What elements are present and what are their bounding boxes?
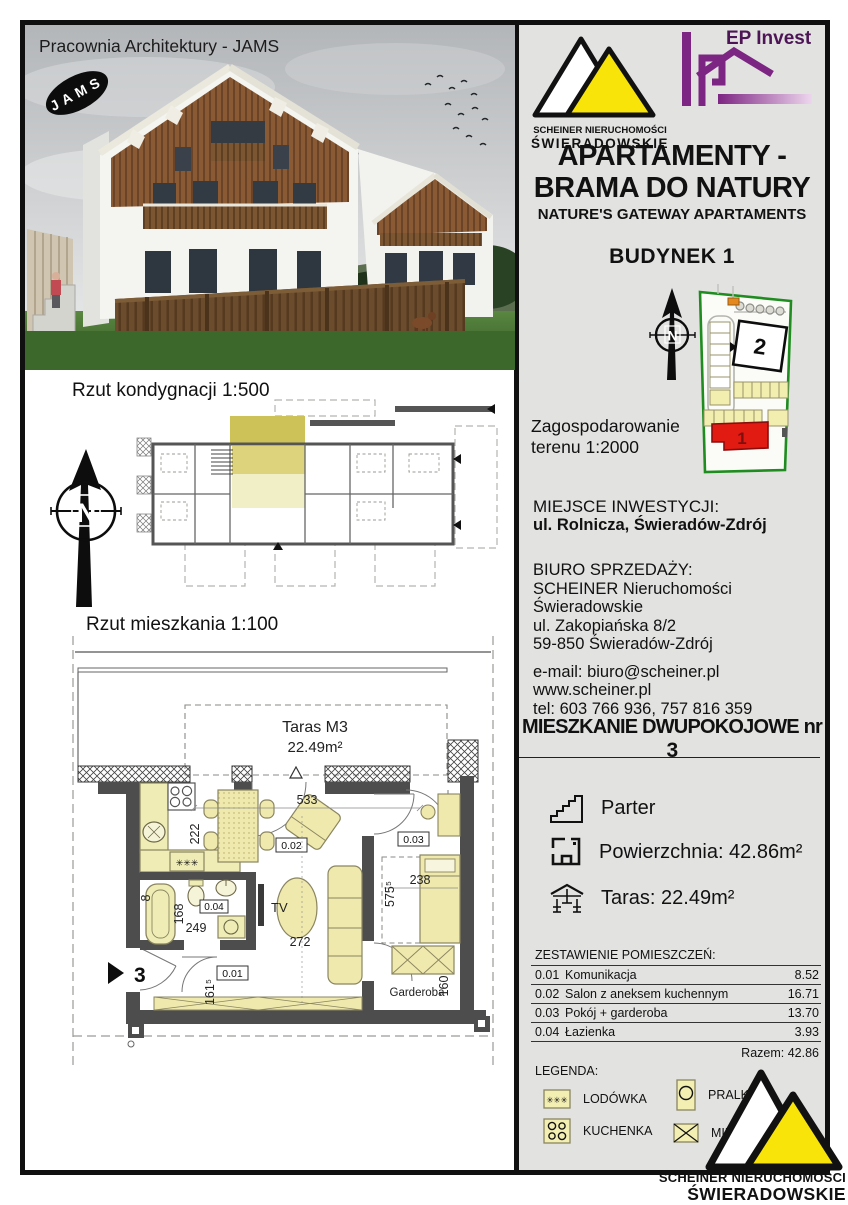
person-figure — [51, 272, 61, 308]
ep-invest-gradient-bar — [718, 94, 812, 104]
office-heading: BIURO SPRZEDAŻY: — [533, 561, 823, 580]
room-table: ZESTAWIENIE POMIESZCZEŃ: 0.01Komunikacja… — [531, 946, 821, 1060]
apartment-number: 3 — [667, 739, 678, 762]
room-02-label: 0.02 — [281, 840, 302, 852]
floor-plan-100: Taras M3 22.49m² — [62, 636, 504, 1072]
room-name: Komunikacja — [565, 968, 795, 982]
corridor-wardrobe — [154, 997, 362, 1010]
room-id: 0.04 — [531, 1025, 565, 1039]
table-row: 0.04Łazienka3.93 — [531, 1022, 821, 1041]
entrance-marker: 3 — [108, 962, 146, 987]
scheiner-logo-icon — [527, 27, 673, 119]
office-email: e-mail: biuro@scheiner.pl — [533, 663, 823, 682]
toilet-tank — [189, 880, 203, 886]
room-table-heading: ZESTAWIENIE POMIESZCZEŃ: — [531, 946, 821, 965]
vent-marker — [290, 767, 302, 778]
site-building-1-label: 1 — [737, 429, 746, 448]
plan100-title: Rzut mieszkania 1:100 — [86, 614, 278, 636]
feature-terrace: Taras: 22.49m² — [549, 880, 819, 916]
page-title-line2: BRAMA DO NATURY — [519, 172, 825, 205]
bedroom-desk — [438, 794, 460, 836]
room-area: 8.52 — [795, 968, 821, 982]
plan500-top-wall-bar — [310, 420, 395, 426]
living-room-group: 0.02 — [276, 793, 362, 984]
site-compass-letter: N — [667, 328, 677, 344]
ep-invest-logo-block: EP Invest — [676, 28, 818, 117]
site-building-2: 2 — [733, 321, 787, 371]
room-name: Pokój + garderoba — [565, 1006, 788, 1020]
fridge-plan-glyph: ✳✳✳ — [176, 858, 199, 868]
photo-credit: Pracownia Architektury - JAMS — [39, 36, 279, 56]
stove-icon — [543, 1118, 571, 1144]
room-04-label: 0.04 — [204, 902, 224, 913]
site-plan-caption: Zagospodarowanie terenu 1:2000 — [531, 416, 701, 458]
room-area: 13.70 — [788, 1006, 821, 1020]
washer-icon — [676, 1079, 696, 1111]
dim-575: 575⁵ — [383, 881, 397, 907]
room-id: 0.01 — [531, 968, 565, 982]
entrance-number: 3 — [134, 964, 146, 987]
room-01-label: 0.01 — [222, 968, 243, 980]
terrace-name: Taras M3 — [282, 719, 348, 736]
dim-160: 160 — [437, 976, 451, 997]
feature-terrace-label: Taras: 22.49m² — [601, 887, 734, 910]
legend-item-label: KUCHENKA — [583, 1124, 652, 1138]
table-row: 0.01Komunikacja8.52 — [531, 965, 821, 984]
table-row: 0.03Pokój + garderoba13.70 — [531, 1003, 821, 1022]
terrace-icon — [549, 881, 585, 915]
feature-floor-label: Parter — [601, 797, 655, 820]
ep-invest-logo-icon: EP Invest — [676, 28, 818, 112]
dim-168: 168 — [172, 904, 186, 925]
wardrobe-icon — [673, 1123, 699, 1143]
room-area: 16.71 — [788, 987, 821, 1001]
compass-icon: N — [48, 445, 124, 611]
legend-item-label: LODÓWKA — [583, 1092, 647, 1106]
terrace-area-value: 22.49m² — [287, 739, 342, 756]
site-edge-mark — [782, 428, 787, 437]
footer-logo-line2: ŚWIERADOWSKIE — [546, 1184, 846, 1205]
sales-office-block: BIURO SPRZEDAŻY: SCHEINER Nieruchomości … — [533, 561, 823, 718]
room-id: 0.02 — [531, 987, 565, 1001]
location-address: ul. Rolnicza, Świeradów-Zdrój — [533, 516, 767, 535]
room-03-label: 0.03 — [403, 834, 424, 846]
dim-238: 238 — [410, 873, 431, 887]
bathroom-group: 0.04 — [140, 872, 256, 950]
washing-machine — [218, 916, 245, 938]
scheiner-logo-line1: SCHEINER NIERUCHOMOŚCI — [527, 125, 673, 136]
legend-heading: LEGENDA: — [535, 1064, 598, 1078]
dim-8: 8 — [139, 894, 153, 901]
room-id: 0.03 — [531, 1006, 565, 1020]
office-website: www.scheiner.pl — [533, 681, 823, 700]
bathtub — [146, 884, 175, 944]
legend-item-fridge: ✳✳✳ LODÓWKA — [543, 1084, 647, 1114]
floor-plan-500 — [125, 398, 505, 613]
table-row: 0.02Salon z aneksem kuchennym16.71 — [531, 984, 821, 1003]
bed-pillow — [425, 859, 455, 872]
plan500-terrace-highlight — [230, 416, 305, 444]
dim-161: 161⁵ — [203, 979, 217, 1005]
plan500-side-hatches — [137, 438, 151, 532]
dim-222: 222 — [188, 824, 202, 845]
stairs-icon — [549, 792, 585, 824]
feature-floor: Parter — [549, 790, 819, 826]
sofa — [328, 866, 362, 984]
legend-item-stove: KUCHENKA — [543, 1116, 652, 1146]
feature-area: Powierzchnia: 42.86m² — [549, 834, 819, 870]
site-compass-icon: N — [650, 288, 695, 380]
footer-logo-line1: SCHEINER NIERUCHOMOŚCI — [546, 1170, 846, 1185]
compass-letter: N — [77, 498, 97, 528]
site-plan-caption-line1: Zagospodarowanie — [531, 416, 701, 437]
fridge-icon: ✳✳✳ — [543, 1089, 571, 1109]
plan500-top-right-bar — [395, 406, 495, 412]
location-heading: MIEJSCE INWESTYCJI: — [533, 497, 719, 517]
office-city: 59-850 Świeradów-Zdrój — [533, 635, 823, 654]
bedroom-stool — [421, 805, 435, 819]
ep-invest-logo-text: EP Invest — [726, 28, 812, 49]
page-title-line1: APARTAMENTY - — [519, 140, 825, 173]
site-orange-object — [728, 298, 739, 305]
feature-area-label: Powierzchnia: 42.86m² — [599, 841, 802, 864]
footer-scheiner-logo-icon — [703, 1051, 848, 1173]
garderoba-wardrobe — [392, 946, 454, 974]
plan500-apartment-highlight-upper — [232, 446, 305, 474]
room-name: Łazienka — [565, 1025, 795, 1039]
foreground-grass — [25, 331, 515, 370]
apartment-rule — [519, 757, 820, 758]
dim-272: 272 — [290, 935, 311, 949]
plan500-arrow-right-top — [487, 404, 495, 414]
apartment-title-text: MIESZKANIE DWUPOKOJOWE nr — [522, 716, 822, 738]
page-subtitle: NATURE'S GATEWAY APARTAMENTS — [519, 206, 825, 223]
site-plan-caption-line2: terenu 1:2000 — [531, 437, 701, 458]
tv-unit — [258, 884, 264, 926]
compass-needle — [69, 449, 101, 607]
dim-533: 533 — [297, 793, 318, 807]
svg-text:✳✳✳: ✳✳✳ — [546, 1095, 568, 1105]
floorplan-icon — [549, 836, 583, 868]
plan500-stairs — [211, 450, 233, 474]
building-label: BUDYNEK 1 — [519, 245, 825, 269]
tv-label: TV — [271, 900, 288, 915]
ep-invest-bar — [682, 32, 691, 106]
room-name: Salon z aneksem kuchennym — [565, 987, 788, 1001]
room-area: 3.93 — [795, 1025, 821, 1039]
dim-249: 249 — [186, 921, 207, 935]
scheiner-logo-block: SCHEINER NIERUCHOMOŚCI ŚWIERADOWSKIE — [527, 27, 673, 151]
building-rendering: Pracownia Architektury - JAMS JAMS — [25, 25, 515, 370]
apartment-title: MIESZKANIE DWUPOKOJOWE nr 3 — [519, 716, 825, 763]
terrace-area: Taras M3 22.49m² — [185, 705, 447, 775]
office-street: ul. Zakopiańska 8/2 — [533, 617, 823, 636]
terrace-parapet-walls — [78, 740, 478, 782]
office-company: SCHEINER Nieruchomości Świeradowskie — [533, 580, 823, 617]
